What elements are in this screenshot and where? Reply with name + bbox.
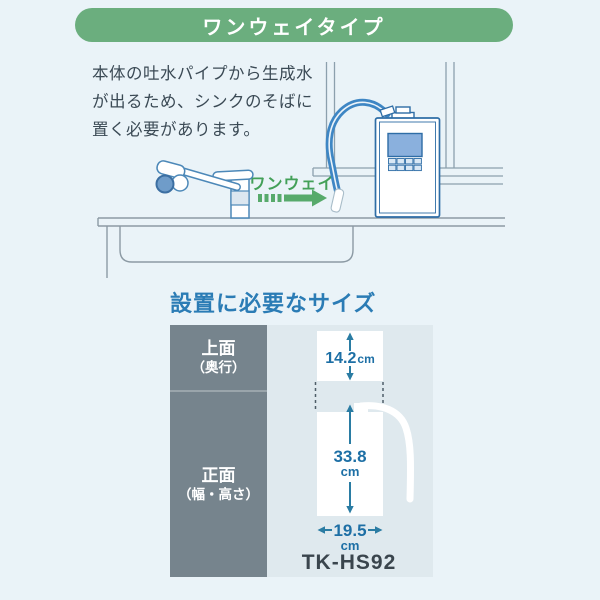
row-top-view-label: 上面 （奥行） xyxy=(170,325,267,392)
row-front-view-label: 正面 （幅・高さ） xyxy=(170,392,267,577)
depth-dimension: 14.2cm xyxy=(325,350,374,367)
row1-sublabel: （奥行） xyxy=(192,359,246,377)
counter xyxy=(98,218,505,278)
size-section-title: 設置に必要なサイズ xyxy=(170,286,376,318)
device-display xyxy=(388,134,422,157)
type-banner-label: ワンウェイタイプ xyxy=(202,11,385,40)
sink-basin xyxy=(120,226,353,262)
ionizer-device xyxy=(376,106,440,217)
flow-direction-label: ワンウェイ xyxy=(249,175,334,193)
size-diagram: 14.2cm 33.8 cm xyxy=(267,325,433,577)
faucet xyxy=(156,160,254,218)
row2-label: 正面 xyxy=(202,466,236,486)
size-table-label-column: 上面 （奥行） 正面 （幅・高さ） xyxy=(170,325,267,577)
front-view-connector xyxy=(354,403,368,413)
model-number: TK-HS92 xyxy=(302,551,397,574)
size-table: 上面 （奥行） 正面 （幅・高さ） 14.2cm xyxy=(170,325,433,577)
type-banner: ワンウェイタイプ xyxy=(75,8,513,42)
faucet-sprayer xyxy=(157,176,174,193)
kitchen-illustration: ワンウェイ xyxy=(85,52,515,292)
height-dimension-unit: cm xyxy=(341,464,360,479)
row2-sublabel: （幅・高さ） xyxy=(178,486,259,504)
infographic-page: ワンウェイタイプ 本体の吐水パイプから生成水 が出るため、シンクのそばに 置く必… xyxy=(0,0,600,600)
row1-label: 上面 xyxy=(202,339,236,359)
size-diagram-cell: 14.2cm 33.8 cm xyxy=(267,325,433,577)
